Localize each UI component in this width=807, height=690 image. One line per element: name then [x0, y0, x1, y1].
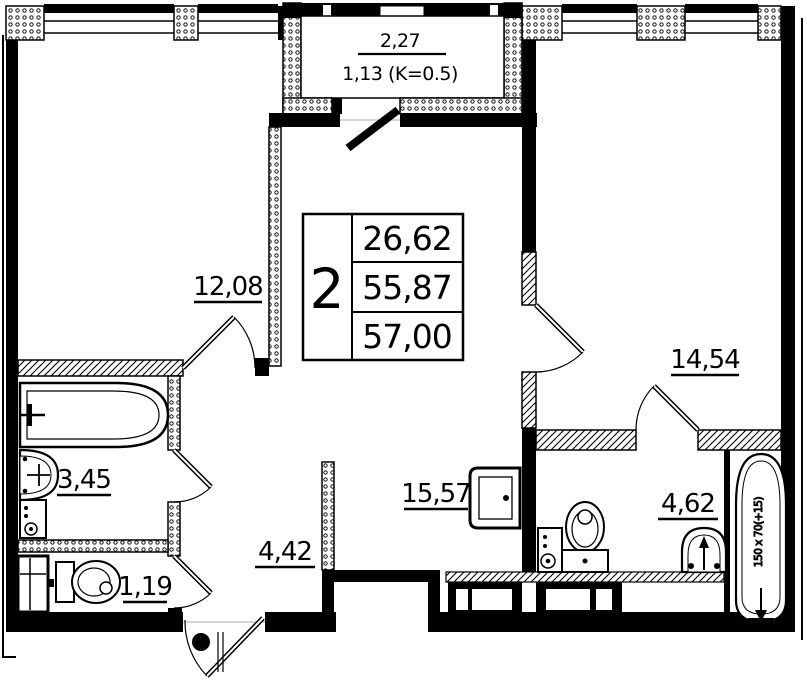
rooms-count: 2 — [310, 257, 345, 321]
svg-text:15,57: 15,57 — [401, 479, 470, 509]
bathtub-tap-icon — [27, 404, 32, 426]
washing-machine-right — [538, 528, 562, 572]
svg-text:14,54: 14,54 — [670, 345, 740, 375]
bottom-step-wall — [334, 570, 440, 582]
floor-plan-drawing: 2,27 1,13 (K=0.5) — [0, 0, 807, 690]
svg-text:4,42: 4,42 — [258, 537, 312, 567]
duct-band — [446, 572, 724, 582]
apartment-summary-table: 2 26,62 55,87 57,00 — [303, 214, 463, 360]
bathtub-left — [19, 383, 168, 447]
wc-cabinet — [18, 556, 48, 612]
sink-right — [682, 528, 726, 572]
svg-text:3,45: 3,45 — [57, 465, 111, 495]
svg-text:12,08: 12,08 — [193, 272, 262, 302]
label-bathroom: 3,45 — [57, 465, 111, 495]
kitchen-fixtures — [470, 468, 520, 528]
balcony-floor — [301, 16, 504, 98]
toilet-left — [49, 561, 120, 603]
apartment-area-value: 55,87 — [362, 268, 451, 307]
total-area-value: 57,00 — [362, 317, 451, 356]
kitchen-sink — [470, 468, 520, 528]
balcony-coefficient-label: 1,13 (K=0.5) — [342, 63, 458, 85]
balcony-area-label: 2,27 — [380, 30, 420, 52]
label-hallway: 4,42 — [255, 537, 315, 567]
label-kitchen-living: 15,57 — [401, 479, 470, 509]
washing-machine-left — [20, 500, 46, 538]
label-bedroom-left: 12,08 — [193, 272, 262, 302]
floor-plan: 2,27 1,13 (K=0.5) — [0, 0, 807, 690]
facade-pier — [6, 6, 44, 40]
svg-text:4,62: 4,62 — [661, 489, 715, 519]
bathtub-right: 150 x 70(+15) — [736, 454, 786, 628]
label-ensuite-bathroom: 4,62 — [658, 489, 718, 519]
bathtub-size-label: 150 x 70(+15) — [753, 497, 765, 568]
facade-pier — [758, 6, 781, 40]
facade-pier — [522, 6, 562, 40]
entrance-door-knob — [192, 633, 210, 651]
label-wc: 1,19 — [118, 572, 172, 602]
balcony: 2,27 1,13 (K=0.5) — [283, 3, 522, 114]
facade-pier — [174, 6, 198, 40]
svg-text:1,19: 1,19 — [118, 572, 172, 602]
living-area-value: 26,62 — [362, 219, 451, 258]
toilet-right — [562, 502, 608, 572]
label-bedroom-right: 14,54 — [670, 345, 740, 375]
ventilation-shaft-right — [536, 582, 622, 618]
facade-pier — [637, 6, 685, 40]
ventilation-shaft-left — [448, 582, 522, 618]
